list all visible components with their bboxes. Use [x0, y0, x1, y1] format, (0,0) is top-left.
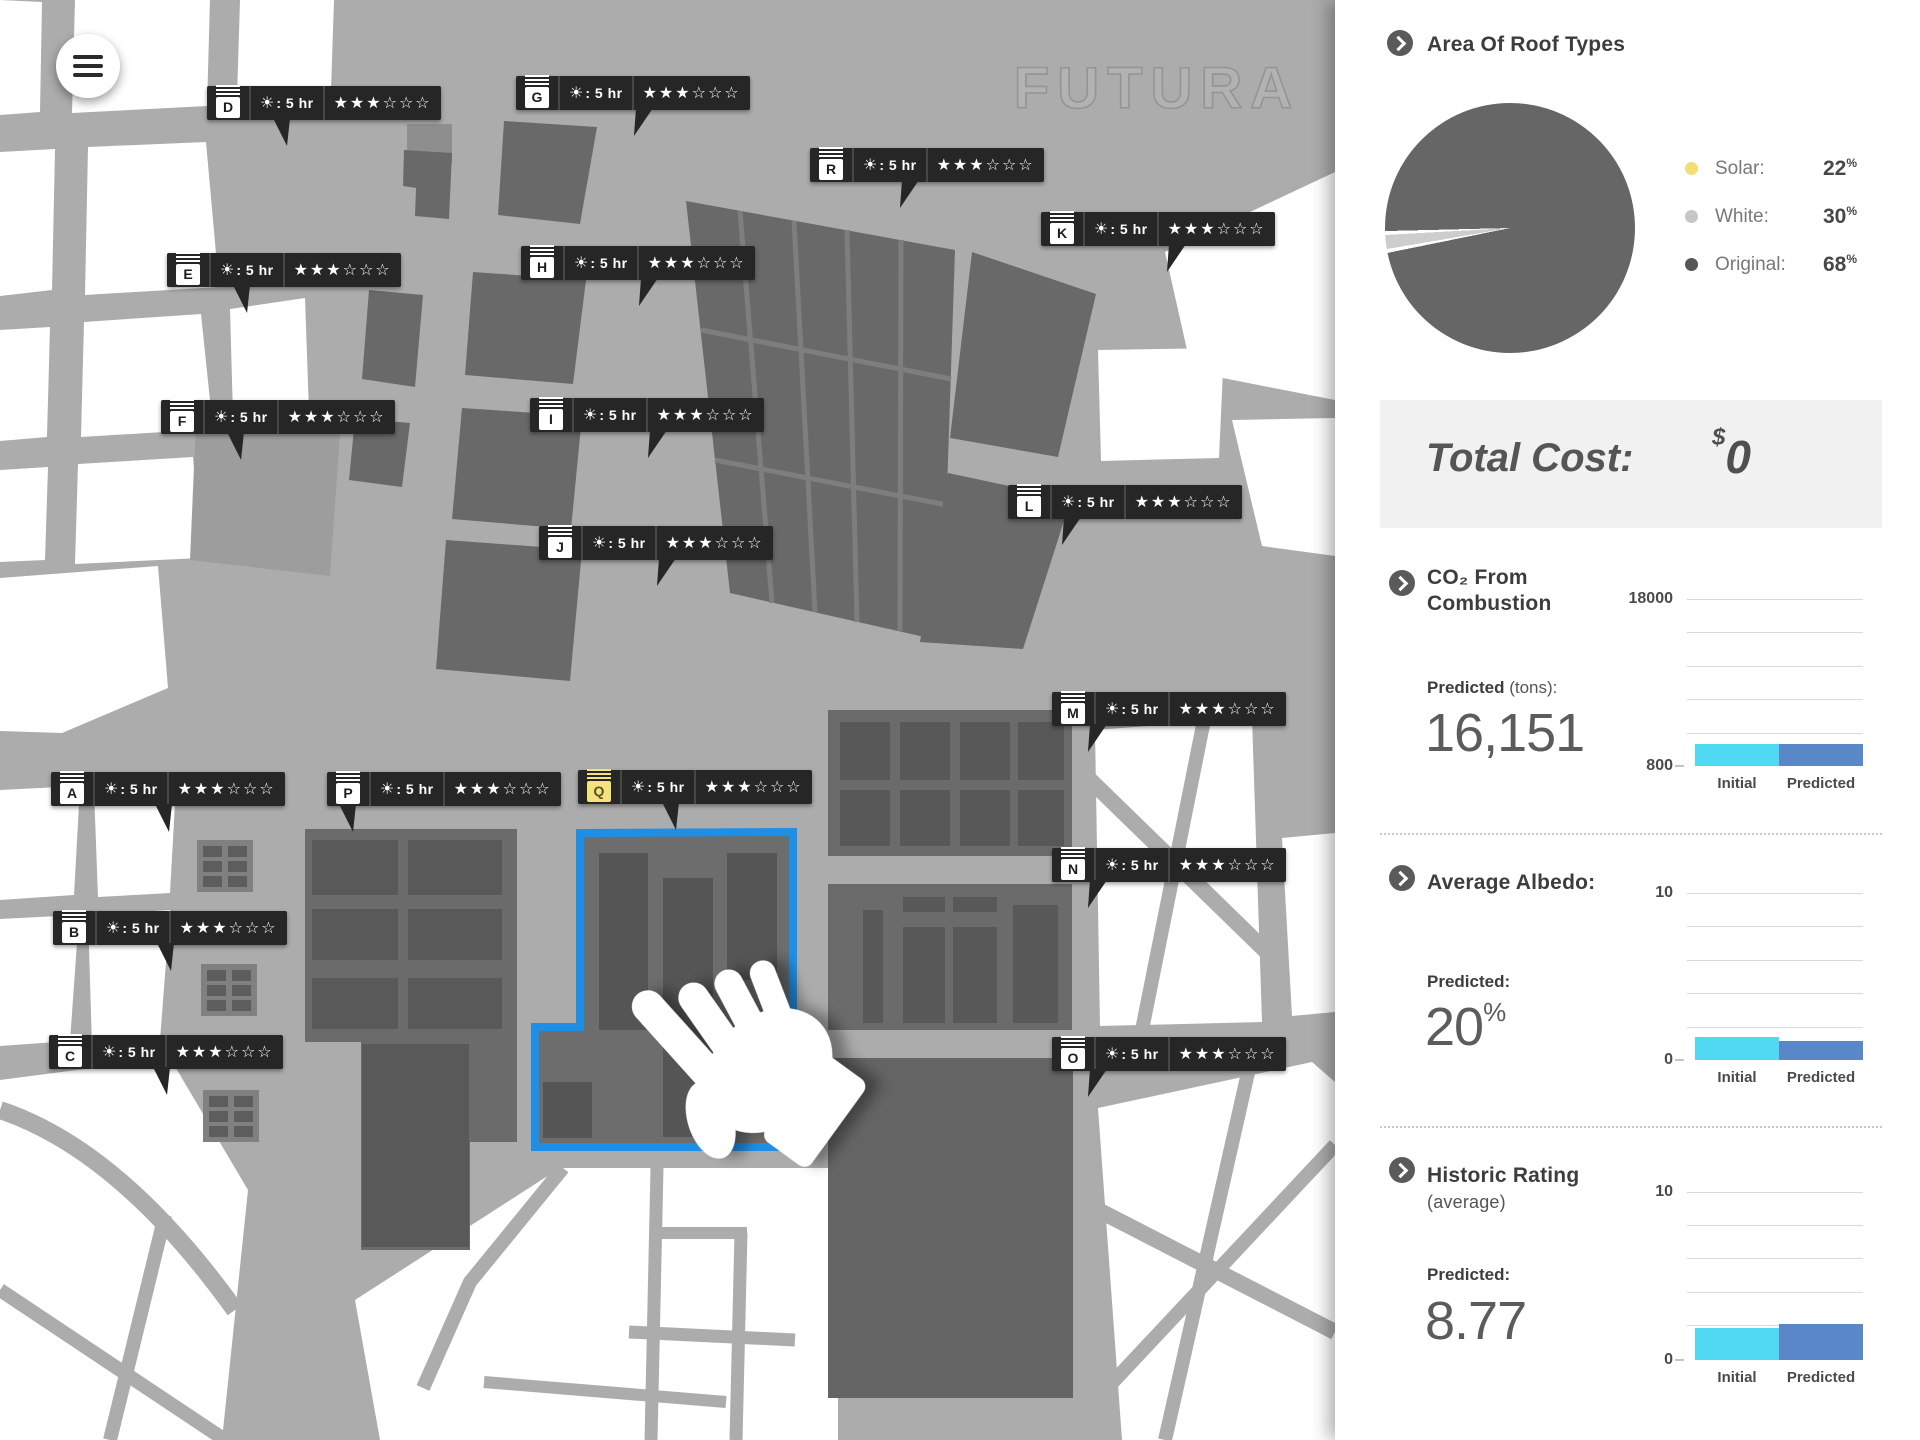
star-rating: ★★★☆☆☆ — [694, 770, 812, 804]
building-label-B[interactable]: B☀ : 5 hr★★★☆☆☆ — [53, 911, 287, 945]
building-label-N[interactable]: N☀ : 5 hr★★★☆☆☆ — [1052, 848, 1286, 882]
sun-hours-label: : 5 hr — [230, 409, 267, 425]
chevron-right-icon[interactable] — [1389, 570, 1415, 596]
predicted-bar — [1779, 744, 1863, 766]
sun-hours-label: : 5 hr — [1121, 857, 1158, 873]
sun-hours: ☀ : 5 hr — [1094, 1037, 1168, 1071]
building-H[interactable] — [465, 272, 586, 384]
legend-row-solar: Solar: 22% — [1685, 158, 1895, 180]
sun-hours: ☀ : 5 hr — [1094, 692, 1168, 726]
bar-label-initial: Initial — [1695, 1369, 1779, 1386]
sun-icon: ☀ — [1105, 699, 1119, 719]
sun-icon: ☀ — [214, 407, 228, 427]
legend-label: Original: — [1715, 254, 1786, 276]
original-dot-icon — [1685, 258, 1698, 271]
building-J[interactable] — [436, 540, 582, 681]
albedo-predicted-label: Predicted: — [1427, 972, 1510, 992]
sun-icon: ☀ — [583, 405, 597, 425]
star-rating: ★★★☆☆☆ — [167, 772, 285, 806]
historic-title: Historic Rating(average) — [1427, 1163, 1579, 1215]
star-rating: ★★★☆☆☆ — [1168, 848, 1286, 882]
sun-hours: ☀ : 5 hr — [1094, 848, 1168, 882]
sun-hours: ☀ : 5 hr — [581, 526, 655, 560]
legend-row-original: Original: 68% — [1685, 254, 1895, 276]
sun-hours-label: : 5 hr — [122, 920, 159, 936]
star-rating: ★★★☆☆☆ — [632, 76, 750, 110]
city-map: FUTURA — [0, 0, 1335, 1440]
building-label-D[interactable]: D☀ : 5 hr★★★☆☆☆ — [207, 86, 441, 120]
sun-hours: ☀ : 5 hr — [563, 246, 637, 280]
building-letter: Q — [587, 781, 611, 802]
sun-hours: ☀ : 5 hr — [95, 911, 169, 945]
building-letter-chip: Q — [578, 770, 620, 804]
legend-row-white: White: 30% — [1685, 206, 1895, 228]
co2-predicted-value: 16,151 — [1425, 702, 1584, 764]
building-label-K[interactable]: K☀ : 5 hr★★★☆☆☆ — [1041, 212, 1275, 246]
albedo-title: Average Albedo: — [1427, 871, 1595, 895]
legend-label: Solar: — [1715, 158, 1765, 180]
sun-hours-label: : 5 hr — [585, 85, 622, 101]
sun-icon: ☀ — [1105, 855, 1119, 875]
sun-icon: ☀ — [863, 155, 877, 175]
bar-label-predicted: Predicted — [1775, 1369, 1867, 1386]
building-label-E[interactable]: E☀ : 5 hr★★★☆☆☆ — [167, 253, 401, 287]
sun-hours-label: : 5 hr — [396, 781, 433, 797]
building-N[interactable] — [828, 884, 1072, 1030]
star-rating: ★★★☆☆☆ — [277, 400, 395, 434]
sun-hours-label: : 5 hr — [276, 95, 313, 111]
bar-label-initial: Initial — [1695, 1069, 1779, 1086]
sun-hours-label: : 5 hr — [1077, 494, 1114, 510]
bar-label-predicted: Predicted — [1775, 1069, 1867, 1086]
building-letter-chip: F — [161, 400, 203, 434]
sun-icon: ☀ — [569, 83, 583, 103]
sun-icon: ☀ — [102, 1042, 116, 1062]
albedo-bar-chart: 10 0 Initial Predicted — [1687, 893, 1863, 1060]
star-rating: ★★★☆☆☆ — [1124, 485, 1242, 519]
legend-value: 22% — [1823, 156, 1857, 181]
predicted-bar — [1779, 1041, 1863, 1060]
building-B[interactable] — [201, 964, 257, 1016]
star-rating: ★★★☆☆☆ — [283, 253, 401, 287]
sun-hours-label: : 5 hr — [647, 779, 684, 795]
map-watermark: FUTURA — [1014, 56, 1300, 121]
sun-hours: ☀ : 5 hr — [852, 148, 926, 182]
building-letter-chip: H — [521, 246, 563, 280]
star-rating: ★★★☆☆☆ — [926, 148, 1044, 182]
building-label-G[interactable]: G☀ : 5 hr★★★☆☆☆ — [516, 76, 750, 110]
building-label-I[interactable]: I☀ : 5 hr★★★☆☆☆ — [530, 398, 764, 432]
building-letter-chip: J — [539, 526, 581, 560]
sun-hours-label: : 5 hr — [1121, 701, 1158, 717]
historic-bar-chart: 10 0 Initial Predicted — [1687, 1192, 1863, 1360]
sun-icon: ☀ — [1061, 492, 1075, 512]
solar-dot-icon — [1685, 162, 1698, 175]
hamburger-icon — [73, 55, 103, 59]
y-axis-max: 18000 — [1617, 590, 1673, 608]
sun-hours-label: : 5 hr — [599, 407, 636, 423]
roof-types-title: Area Of Roof Types — [1427, 33, 1625, 57]
y-axis-max: 10 — [1617, 884, 1673, 902]
building-letter: D — [216, 97, 240, 118]
sun-hours-label: : 5 hr — [120, 781, 157, 797]
building-letter: N — [1061, 859, 1085, 880]
building-letter-chip: O — [1052, 1037, 1094, 1071]
sun-icon: ☀ — [380, 779, 394, 799]
sun-hours: ☀ : 5 hr — [1083, 212, 1157, 246]
building-letter-chip: G — [516, 76, 558, 110]
building-A[interactable] — [197, 840, 253, 892]
menu-button[interactable] — [56, 34, 120, 98]
sun-hours: ☀ : 5 hr — [209, 253, 283, 287]
divider — [1380, 833, 1882, 835]
building-letter-chip: P — [327, 772, 369, 806]
star-rating: ★★★☆☆☆ — [637, 246, 755, 280]
building-label-Q[interactable]: Q☀ : 5 hr★★★☆☆☆ — [578, 770, 812, 804]
building-letter: M — [1061, 703, 1085, 724]
sun-icon: ☀ — [260, 93, 274, 113]
building-label-R[interactable]: R☀ : 5 hr★★★☆☆☆ — [810, 148, 1044, 182]
hamburger-icon — [73, 64, 103, 68]
building-label-A[interactable]: A☀ : 5 hr★★★☆☆☆ — [51, 772, 285, 806]
building-light-block[interactable] — [190, 420, 340, 576]
building-letter-chip: B — [53, 911, 95, 945]
sun-icon: ☀ — [1105, 1044, 1119, 1064]
star-rating: ★★★☆☆☆ — [646, 398, 764, 432]
building-letter-chip: C — [49, 1035, 91, 1069]
building-letter: O — [1061, 1048, 1085, 1069]
bar-label-predicted: Predicted — [1775, 775, 1867, 792]
sun-hours: ☀ : 5 hr — [572, 398, 646, 432]
star-rating: ★★★☆☆☆ — [1168, 1037, 1286, 1071]
y-axis-min: 800 — [1617, 757, 1673, 775]
building-label-P[interactable]: P☀ : 5 hr★★★☆☆☆ — [327, 772, 561, 806]
total-cost-value: $0 — [1712, 424, 1751, 484]
sun-hours: ☀ : 5 hr — [91, 1035, 165, 1069]
building-O[interactable] — [828, 1058, 1073, 1398]
y-axis-max: 10 — [1617, 1183, 1673, 1201]
building-letter: J — [548, 537, 572, 558]
legend-label: White: — [1715, 206, 1769, 228]
star-rating: ★★★☆☆☆ — [1157, 212, 1275, 246]
building-label-O[interactable]: O☀ : 5 hr★★★☆☆☆ — [1052, 1037, 1286, 1071]
sun-hours-label: : 5 hr — [236, 262, 273, 278]
sun-hours: ☀ : 5 hr — [620, 770, 694, 804]
chevron-right-icon[interactable] — [1389, 865, 1415, 891]
building-label-L[interactable]: L☀ : 5 hr★★★☆☆☆ — [1008, 485, 1242, 519]
building-G[interactable] — [498, 121, 597, 224]
sun-hours: ☀ : 5 hr — [1050, 485, 1124, 519]
building-letter: H — [530, 257, 554, 278]
sun-icon: ☀ — [631, 777, 645, 797]
stats-sidebar: Area Of Roof Types Solar: 22% White: 30%… — [1335, 0, 1920, 1440]
sun-icon: ☀ — [106, 918, 120, 938]
building-letter-chip: L — [1008, 485, 1050, 519]
total-cost-panel: Total Cost: $0 — [1380, 400, 1882, 528]
building-E[interactable] — [362, 290, 423, 387]
building-letter-chip: R — [810, 148, 852, 182]
legend-value: 68% — [1823, 252, 1857, 277]
building-letter-chip: K — [1041, 212, 1083, 246]
initial-bar — [1695, 1328, 1779, 1360]
roof-types-pie-chart — [1385, 103, 1635, 353]
historic-predicted-label: Predicted: — [1427, 1265, 1510, 1285]
chevron-right-icon[interactable] — [1389, 1157, 1415, 1183]
building-letter-chip: I — [530, 398, 572, 432]
star-rating: ★★★☆☆☆ — [443, 772, 561, 806]
building-letter: P — [336, 783, 360, 804]
building-letter: L — [1017, 496, 1041, 517]
star-rating: ★★★☆☆☆ — [655, 526, 773, 560]
legend-value: 30% — [1823, 204, 1857, 229]
sun-hours: ☀ : 5 hr — [249, 86, 323, 120]
sun-hours-label: : 5 hr — [118, 1044, 155, 1060]
hamburger-icon — [73, 73, 103, 77]
building-letter-chip: N — [1052, 848, 1094, 882]
co2-title: CO₂ FromCombustion — [1427, 565, 1551, 617]
sun-hours: ☀ : 5 hr — [203, 400, 277, 434]
sun-hours-label: : 5 hr — [1121, 1046, 1158, 1062]
sun-icon: ☀ — [220, 260, 234, 280]
sun-hours: ☀ : 5 hr — [369, 772, 443, 806]
building-letter-chip: M — [1052, 692, 1094, 726]
sun-hours: ☀ : 5 hr — [93, 772, 167, 806]
co2-bar-chart: 18000 800 Initial Predicted — [1687, 599, 1863, 766]
sun-icon: ☀ — [1094, 219, 1108, 239]
building-letter: C — [58, 1046, 82, 1067]
building-letter-chip: E — [167, 253, 209, 287]
building-label-C[interactable]: C☀ : 5 hr★★★☆☆☆ — [49, 1035, 283, 1069]
y-axis-min: 0 — [1617, 1351, 1673, 1369]
building-letter: K — [1050, 223, 1074, 244]
y-axis-min: 0 — [1617, 1051, 1673, 1069]
star-rating: ★★★☆☆☆ — [1168, 692, 1286, 726]
sun-hours-label: : 5 hr — [1110, 221, 1147, 237]
historic-predicted-value: 8.77 — [1425, 1290, 1526, 1352]
building-C[interactable] — [203, 1090, 259, 1142]
sun-hours-label: : 5 hr — [590, 255, 627, 271]
initial-bar — [1695, 1037, 1779, 1060]
co2-predicted-label: Predicted (tons): — [1427, 678, 1557, 698]
building-letter: E — [176, 264, 200, 285]
predicted-bar — [1779, 1324, 1863, 1360]
building-label-J[interactable]: J☀ : 5 hr★★★☆☆☆ — [539, 526, 773, 560]
building-letter: I — [539, 409, 563, 430]
building-letter: G — [525, 87, 549, 108]
building-letter: B — [62, 922, 86, 943]
white-dot-icon — [1685, 210, 1698, 223]
total-cost-label: Total Cost: — [1426, 436, 1633, 481]
building-label-F[interactable]: F☀ : 5 hr★★★☆☆☆ — [161, 400, 395, 434]
sun-icon: ☀ — [592, 533, 606, 553]
building-label-H[interactable]: H☀ : 5 hr★★★☆☆☆ — [521, 246, 755, 280]
star-rating: ★★★☆☆☆ — [323, 86, 441, 120]
building-label-M[interactable]: M☀ : 5 hr★★★☆☆☆ — [1052, 692, 1286, 726]
building-letter: A — [60, 783, 84, 804]
app-window: FUTURA — [0, 0, 1920, 1440]
sun-hours-label: : 5 hr — [879, 157, 916, 173]
sun-hours: ☀ : 5 hr — [558, 76, 632, 110]
building-letter: R — [819, 159, 843, 180]
building-letter-chip: D — [207, 86, 249, 120]
bar-label-initial: Initial — [1695, 775, 1779, 792]
building-letter-chip: A — [51, 772, 93, 806]
albedo-predicted-value: 20% — [1425, 996, 1506, 1058]
sun-icon: ☀ — [574, 253, 588, 273]
sun-hours-label: : 5 hr — [608, 535, 645, 551]
sun-icon: ☀ — [104, 779, 118, 799]
initial-bar — [1695, 744, 1779, 766]
star-rating: ★★★☆☆☆ — [169, 911, 287, 945]
building-M[interactable] — [828, 710, 1072, 856]
divider — [1380, 1126, 1882, 1128]
building-letter: F — [170, 411, 194, 432]
chevron-right-icon[interactable] — [1387, 30, 1413, 56]
star-rating: ★★★☆☆☆ — [165, 1035, 283, 1069]
